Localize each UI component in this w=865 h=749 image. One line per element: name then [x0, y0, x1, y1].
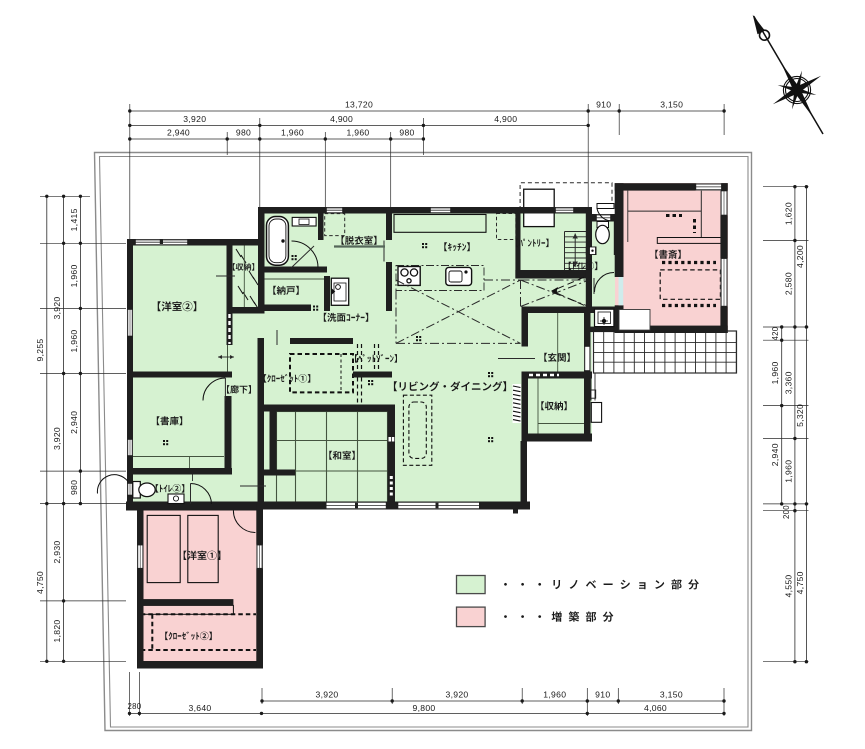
svg-text:1,960: 1,960	[281, 128, 304, 138]
svg-text:2,940: 2,940	[167, 128, 190, 138]
svg-text:980: 980	[399, 128, 414, 138]
svg-text:1,620: 1,620	[783, 202, 793, 225]
svg-text:13,720: 13,720	[345, 100, 373, 110]
svg-text:9,255: 9,255	[35, 338, 45, 361]
svg-text:3,150: 3,150	[660, 100, 683, 110]
svg-text:1,960: 1,960	[770, 361, 780, 384]
svg-text:1,415: 1,415	[69, 208, 79, 231]
svg-text:2,930: 2,930	[52, 540, 62, 563]
svg-text:3,360: 3,360	[783, 371, 793, 394]
svg-text:4,200: 4,200	[795, 245, 805, 268]
svg-text:1,960: 1,960	[69, 329, 79, 352]
svg-text:5,320: 5,320	[795, 404, 805, 427]
svg-text:2,580: 2,580	[783, 272, 793, 295]
svg-text:4,750: 4,750	[35, 571, 45, 594]
svg-text:3,920: 3,920	[52, 427, 62, 450]
svg-text:2,940: 2,940	[69, 411, 79, 434]
svg-text:200: 200	[782, 505, 791, 519]
svg-text:1,820: 1,820	[52, 619, 62, 642]
svg-text:420: 420	[771, 326, 780, 340]
svg-text:910: 910	[595, 690, 610, 700]
svg-text:910: 910	[596, 100, 611, 110]
svg-text:4,550: 4,550	[783, 574, 793, 597]
svg-text:4,900: 4,900	[330, 114, 353, 124]
svg-text:3,150: 3,150	[660, 690, 683, 700]
svg-text:1,960: 1,960	[783, 460, 793, 483]
svg-text:3,920: 3,920	[52, 296, 62, 319]
svg-text:3,640: 3,640	[188, 703, 211, 713]
svg-text:280: 280	[128, 702, 142, 711]
svg-text:4,900: 4,900	[494, 114, 517, 124]
svg-text:980: 980	[236, 128, 251, 138]
svg-text:4,750: 4,750	[795, 571, 805, 594]
svg-text:3,920: 3,920	[315, 690, 338, 700]
svg-text:3,920: 3,920	[445, 690, 468, 700]
svg-text:3,920: 3,920	[183, 114, 206, 124]
svg-text:2,940: 2,940	[770, 443, 780, 466]
svg-text:1,960: 1,960	[346, 128, 369, 138]
svg-text:4,060: 4,060	[644, 703, 667, 713]
svg-text:9,800: 9,800	[412, 703, 435, 713]
svg-text:1,960: 1,960	[69, 264, 79, 287]
svg-text:1,960: 1,960	[543, 690, 566, 700]
svg-text:980: 980	[69, 480, 79, 495]
